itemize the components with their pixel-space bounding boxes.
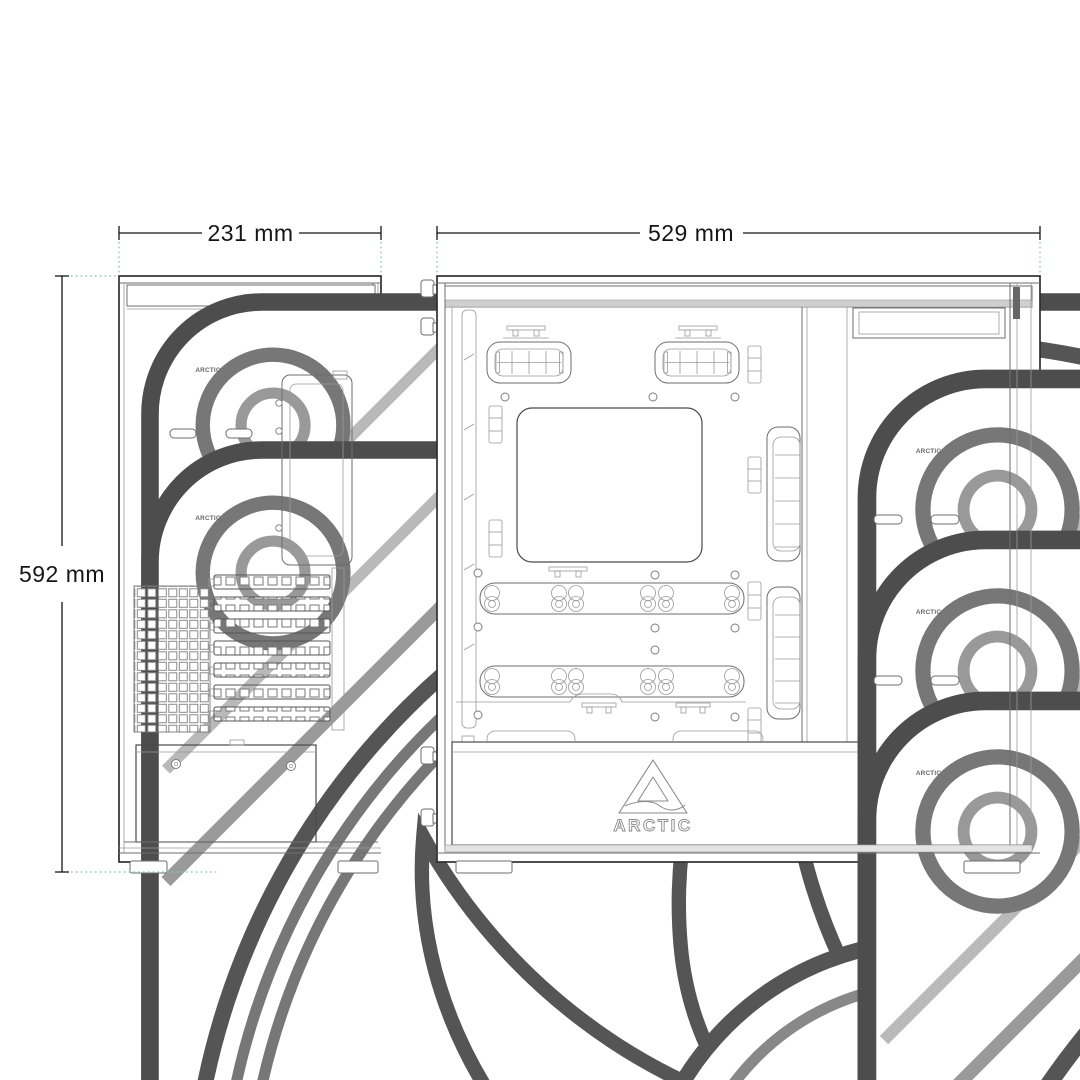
shroud-logo-text: ARCTIC (613, 816, 692, 835)
fan-hub-logo-text: ARCTIC (195, 367, 221, 374)
fan-hub-logo-text: ARCTIC (916, 770, 942, 777)
case-foot (338, 861, 378, 873)
height-label: 592 mm (19, 561, 105, 587)
dimension-drawing-canvas: ARCTIC ARCTIC (0, 0, 1080, 1080)
bottom-mesh-vent (134, 586, 210, 732)
depth-label: 529 mm (648, 220, 734, 246)
fan-hub-logo-text: ARCTIC (916, 609, 942, 616)
case-foot (130, 861, 167, 873)
fan-hub-logo-text: ARCTIC (916, 448, 942, 455)
front-width-label: 231 mm (207, 220, 293, 246)
case-foot (456, 861, 512, 873)
case-dimension-drawing: ARCTIC ARCTIC (0, 0, 1080, 1080)
dimension-front-width: 231 mm (119, 220, 381, 273)
side-fan-icon (867, 701, 1080, 1080)
dimension-depth: 529 mm (437, 220, 1040, 273)
fan-hub-logo-text: ARCTIC (195, 515, 221, 522)
case-foot (964, 861, 1020, 873)
